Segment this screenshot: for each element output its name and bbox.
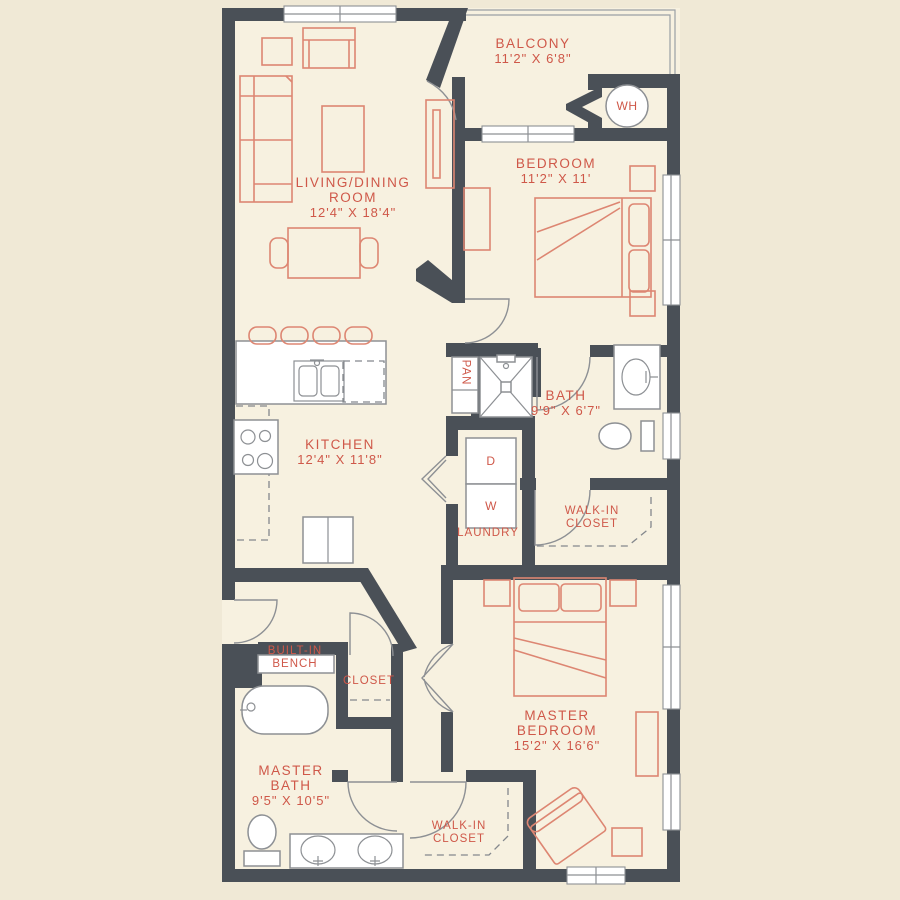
- label-built-in-bench: BUILT-IN BENCH: [268, 645, 322, 671]
- master-bedroom-bottom-window: [567, 867, 625, 884]
- room-name: CLOSET: [432, 833, 487, 846]
- room-name: WH: [617, 99, 638, 114]
- room-name: CLOSET: [343, 675, 395, 688]
- appliance-label: D: [486, 454, 495, 469]
- room-dims: 11'2" X 11': [516, 171, 596, 186]
- room-dims: 9'5" X 10'5": [252, 793, 330, 808]
- shower: [480, 355, 532, 417]
- label-living-dining: LIVING/DINING ROOM 12'4" X 18'4": [296, 175, 411, 220]
- room-name: LAUNDRY: [457, 527, 519, 540]
- kitchen-counter: [236, 341, 386, 404]
- label-dryer: D: [486, 454, 495, 469]
- room-dims: 9'9" X 6'7": [531, 403, 601, 418]
- room-name: BALCONY: [494, 36, 571, 51]
- label-bath: BATH 9'9" X 6'7": [531, 388, 601, 418]
- master-bedroom-side-window-1: [663, 585, 680, 709]
- bedroom-window: [482, 126, 574, 142]
- room-name: KITCHEN: [297, 437, 383, 452]
- room-name: MASTER: [252, 763, 330, 778]
- range: [234, 420, 278, 474]
- label-wh: WH: [617, 99, 638, 114]
- room-name: CLOSET: [565, 518, 620, 531]
- label-bedroom: BEDROOM 11'2" X 11': [516, 156, 596, 186]
- room-dims: 12'4" X 18'4": [296, 205, 411, 220]
- bath-vanity: [614, 345, 660, 409]
- floor-plan-drawing: [0, 0, 900, 900]
- room-name: LIVING/DINING: [296, 175, 411, 190]
- bath-window: [663, 413, 680, 459]
- label-walkin-closet-lower: WALK-IN CLOSET: [432, 820, 487, 846]
- bedroom-side-window: [663, 175, 680, 305]
- refrigerator: [303, 517, 353, 563]
- double-vanity: [290, 834, 403, 868]
- label-master-bath: MASTER BATH 9'5" X 10'5": [252, 763, 330, 808]
- floor-plan: BALCONY 11'2" X 6'8" WH BEDROOM 11'2" X …: [0, 0, 900, 900]
- room-name: BEDROOM: [514, 723, 600, 738]
- label-washer: W: [485, 499, 497, 514]
- room-name: BEDROOM: [516, 156, 596, 171]
- room-name: ROOM: [296, 190, 411, 205]
- label-master-bedroom: MASTER BEDROOM 15'2" X 16'6": [514, 708, 600, 753]
- living-window: [284, 6, 396, 22]
- appliance-label: W: [485, 499, 497, 514]
- room-dims: 12'4" X 11'8": [297, 452, 383, 467]
- master-bedroom-side-window-2: [663, 774, 680, 830]
- room-name: MASTER: [514, 708, 600, 723]
- room-name: BENCH: [268, 658, 322, 671]
- label-walkin-closet-upper: WALK-IN CLOSET: [565, 505, 620, 531]
- room-name: WALK-IN: [565, 505, 620, 518]
- label-kitchen: KITCHEN 12'4" X 11'8": [297, 437, 383, 467]
- room-dims: 15'2" X 16'6": [514, 738, 600, 753]
- room-name: BATH: [531, 388, 601, 403]
- label-pantry: PAN: [459, 360, 472, 386]
- room-name: BUILT-IN: [268, 645, 322, 658]
- label-closet: CLOSET: [343, 675, 395, 688]
- room-name: BATH: [252, 778, 330, 793]
- label-laundry: LAUNDRY: [457, 527, 519, 540]
- bathtub: [240, 686, 328, 734]
- room-name: WALK-IN: [432, 820, 487, 833]
- room-name: PAN: [459, 360, 472, 386]
- washer-dryer: [466, 438, 516, 528]
- room-dims: 11'2" X 6'8": [494, 51, 571, 66]
- label-balcony: BALCONY 11'2" X 6'8": [494, 36, 571, 66]
